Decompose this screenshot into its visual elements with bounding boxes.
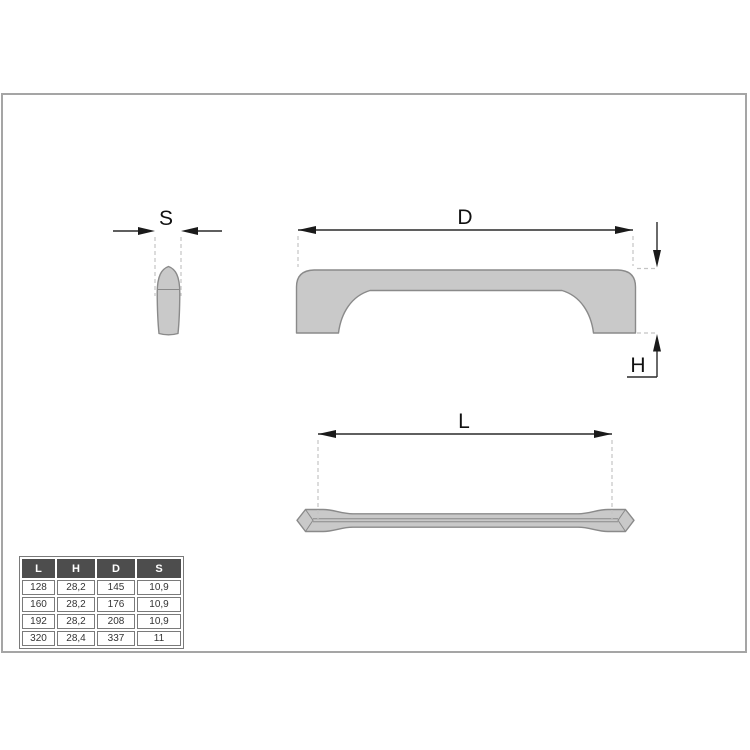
table-row: 32028,433711 [22,631,181,646]
side-profile-view: S [113,207,222,335]
table-row: 12828,214510,9 [22,580,181,595]
table-cell: 192 [22,614,55,629]
table-cell: 28,2 [57,597,95,612]
table-cell: 28,2 [57,580,95,595]
table-row: 19228,220810,9 [22,614,181,629]
front-view: D H [297,206,662,377]
table-row: 16028,217610,9 [22,597,181,612]
handle-top-shape [297,510,634,532]
table-cell: 160 [22,597,55,612]
handle-side-profile-shape [157,267,180,335]
d-extension-lines [298,236,633,267]
table-cell: 176 [97,597,135,612]
dimensions-table: LHDS 12828,214510,916028,217610,919228,2… [19,556,184,649]
h-dimension-arrows [653,250,661,352]
table-cell: 10,9 [137,597,181,612]
h-dimension-label: H [630,354,645,377]
handle-front-shape [297,270,636,333]
table-header-cell: D [97,559,135,578]
table-cell: 28,4 [57,631,95,646]
table-header-cell: S [137,559,181,578]
table-header-cell: H [57,559,95,578]
table-cell: 145 [97,580,135,595]
s-dimension-label: S [159,207,173,230]
l-extension-lines [318,440,612,519]
table-cell: 28,2 [57,614,95,629]
top-view: L [297,410,634,532]
l-dimension-label: L [458,410,470,433]
h-extension-lines [637,269,658,334]
table-cell: 320 [22,631,55,646]
table-cell: 337 [97,631,135,646]
dimensions-table-header-row: LHDS [22,559,181,578]
table-cell: 11 [137,631,181,646]
drawing-sheet: S D [0,0,750,750]
d-dimension-label: D [457,206,472,229]
table-cell: 208 [97,614,135,629]
table-cell: 10,9 [137,580,181,595]
table-cell: 10,9 [137,614,181,629]
dimensions-table-container: LHDS 12828,214510,916028,217610,919228,2… [19,556,184,649]
table-cell: 128 [22,580,55,595]
table-header-cell: L [22,559,55,578]
